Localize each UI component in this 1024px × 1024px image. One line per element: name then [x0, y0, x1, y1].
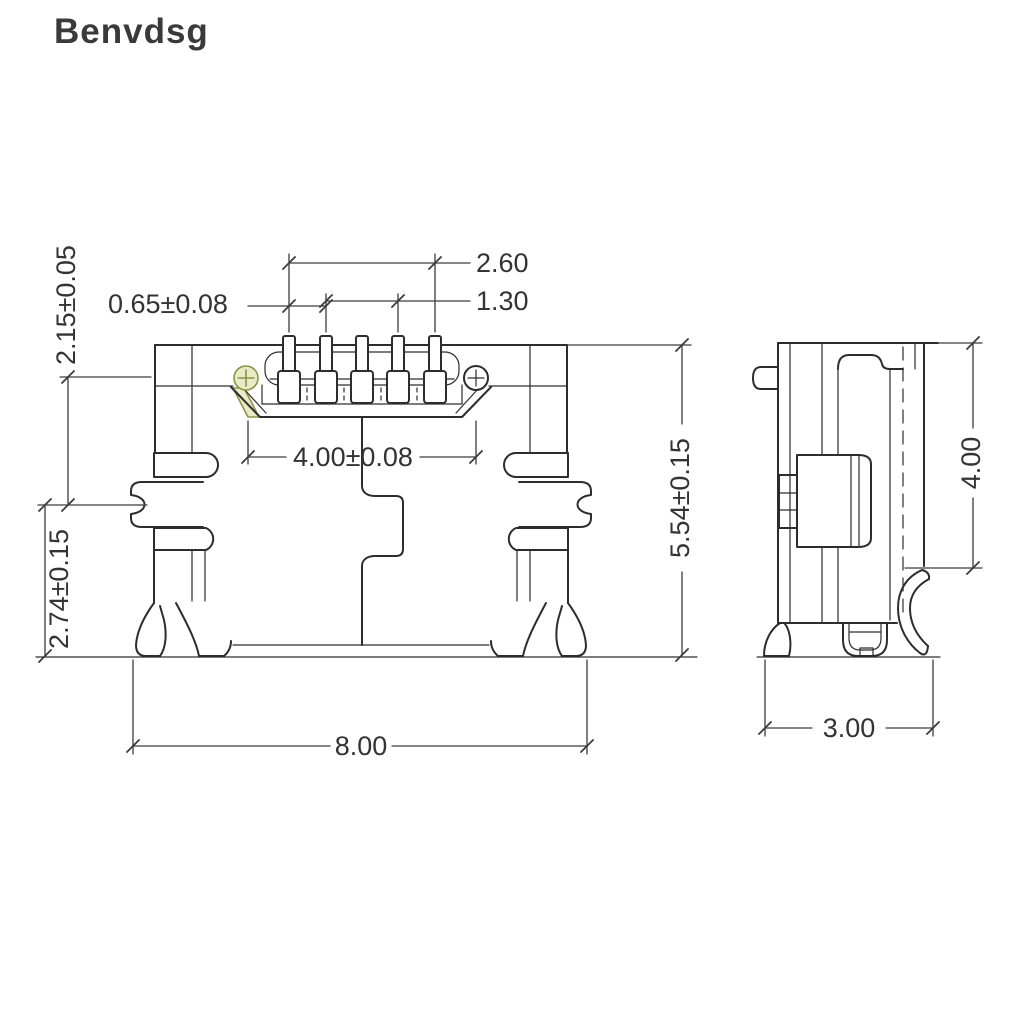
- side-feet: [764, 570, 929, 656]
- side-pin-tab: [753, 367, 778, 389]
- pin: [320, 336, 332, 373]
- pin: [283, 336, 295, 373]
- latch-block-outline: [797, 455, 871, 547]
- dim-pin-pair: 1.30: [326, 286, 529, 332]
- left-tab-upper: [154, 453, 218, 477]
- screw-left: [234, 366, 258, 390]
- dim-pin-span-ext: [289, 254, 435, 332]
- screw-right: [464, 366, 488, 390]
- solder-strip: [779, 475, 797, 528]
- dim-label-overall-height: 5.54±0.15: [665, 438, 695, 558]
- dim-label-pin-pair: 1.30: [476, 286, 529, 316]
- side-latch-block: [779, 455, 871, 547]
- pin-collar: [278, 371, 300, 403]
- dim-label-lower-height: 2.74±0.15: [44, 529, 74, 649]
- side-center-foot-inner: [849, 624, 881, 650]
- dim-label-overall-width: 8.00: [335, 731, 388, 761]
- dim-label-pin-pitch: 0.65±0.08: [108, 289, 228, 319]
- side-left-foot: [764, 623, 790, 656]
- dim-pin-pitch: 0.65±0.08: [108, 289, 326, 319]
- dim-label-tongue-width: 4.00±0.08: [293, 442, 413, 472]
- dim-lower-height: 2.74±0.15: [44, 505, 74, 656]
- dimension-annotations: 2.60 1.30 0.65±0.08 2.15±0.05 2.74±0.15: [38, 245, 986, 761]
- right-tab-lower: [509, 528, 568, 550]
- left-foot-outer: [136, 603, 166, 656]
- right-foot-inner: [491, 603, 546, 656]
- front-right-leg: [491, 453, 591, 656]
- right-notch-tab: [519, 482, 591, 527]
- technical-drawing: 2.60 1.30 0.65±0.08 2.15±0.05 2.74±0.15: [0, 0, 1024, 1024]
- pin: [356, 336, 368, 373]
- solder-strip-cells: [779, 493, 797, 510]
- pin-housing: [262, 336, 462, 404]
- side-center-foot-notch: [860, 648, 873, 656]
- pin-collar: [424, 371, 446, 403]
- left-tab-lower: [154, 528, 213, 550]
- mouth-right-diagonal-inner: [456, 389, 478, 413]
- side-view: [753, 343, 940, 657]
- side-hook-inner: [910, 579, 929, 646]
- dim-upper-height: 2.15±0.05: [38, 245, 151, 505]
- front-view: [36, 336, 697, 657]
- pin-collar: [315, 371, 337, 403]
- left-foot-inner: [176, 603, 231, 656]
- dim-side-depth: 3.00: [765, 660, 933, 743]
- side-top-step: [838, 355, 903, 369]
- dim-upper-height-ext: [38, 377, 151, 505]
- dim-label-side-depth: 3.00: [823, 713, 876, 743]
- contact-pins: [278, 336, 446, 403]
- pin: [392, 336, 404, 373]
- pin-collar: [351, 371, 373, 403]
- right-tab-upper: [504, 453, 568, 477]
- dim-overall-width: 8.00: [133, 660, 587, 761]
- pin-collar: [387, 371, 409, 403]
- latch-block-double-line: [851, 456, 859, 546]
- dim-pin-pair-ext: [326, 294, 398, 332]
- screw-right-cross-icon: [468, 370, 484, 386]
- pin: [429, 336, 441, 373]
- dim-side-height: 4.00: [905, 343, 986, 568]
- dim-label-side-height: 4.00: [956, 437, 986, 490]
- dimension-ticks: [39, 257, 979, 752]
- page: Benvdsg: [0, 0, 1024, 1024]
- front-left-leg: [131, 453, 231, 656]
- dim-overall-height: 5.54±0.15: [567, 345, 695, 655]
- dim-label-upper-height: 2.15±0.05: [51, 245, 81, 365]
- right-foot-outer: [556, 603, 586, 656]
- dim-label-pin-span: 2.60: [476, 248, 529, 278]
